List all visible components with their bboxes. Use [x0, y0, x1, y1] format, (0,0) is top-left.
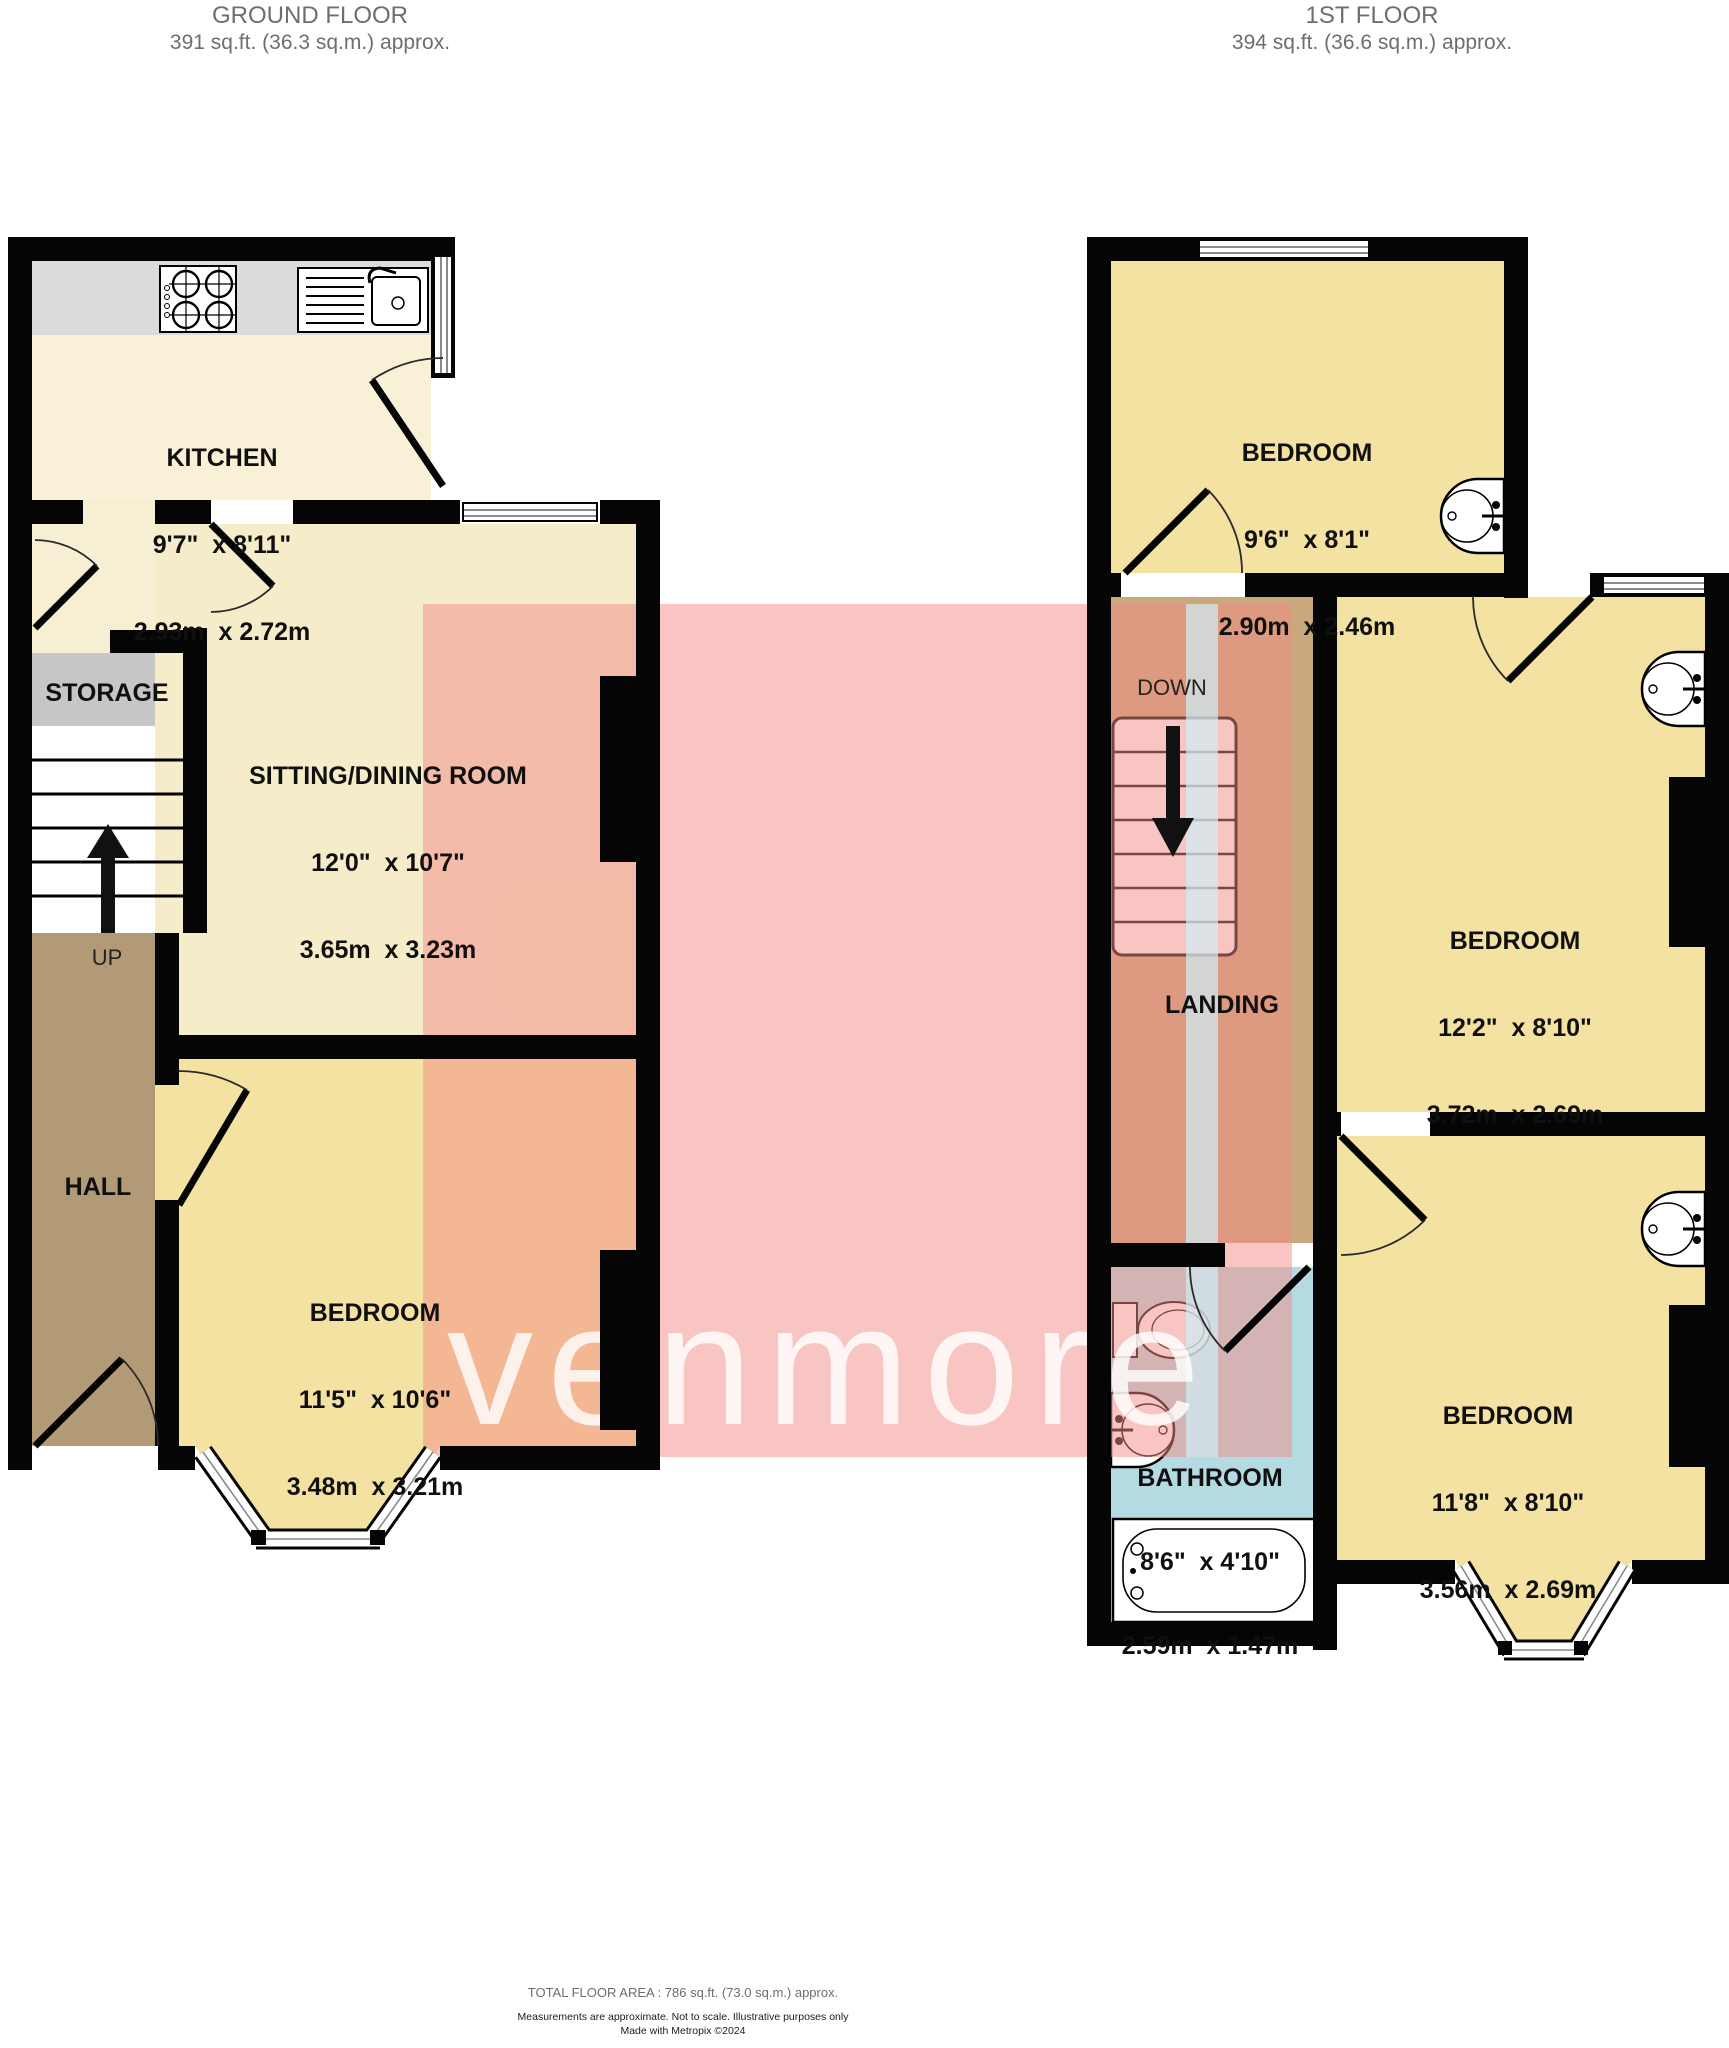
down-label: DOWN [1092, 676, 1252, 700]
bathroom-label: BATHROOM 8'6" x 4'10" 2.59m x 1.47m [1070, 1408, 1350, 1716]
wall [600, 500, 660, 524]
rear-bedroom-window [1198, 239, 1370, 259]
kitchen-counter [32, 261, 431, 335]
room-dims-metric: 2.59m x 1.47m [1070, 1632, 1350, 1660]
footer: TOTAL FLOOR AREA : 786 sq.ft. (73.0 sq.m… [333, 1984, 1033, 2038]
floorplan-page: GROUND FLOOR 391 sq.ft. (36.3 sq.m.) app… [0, 0, 1729, 2048]
wall [8, 237, 32, 1470]
chimney-breast [600, 676, 636, 862]
wall [636, 524, 660, 1470]
wall [155, 1035, 660, 1059]
room-dims-imperial: 12'0" x 10'7" [188, 849, 588, 878]
room-name: BEDROOM [1335, 927, 1695, 956]
room-dims-metric: 3.72m x 2.69m [1335, 1101, 1695, 1130]
ground-floor-header: GROUND FLOOR 391 sq.ft. (36.3 sq.m.) app… [60, 2, 560, 56]
front-bedroom-label: BEDROOM 11'8" x 8'10" 3.56m x 2.69m [1328, 1344, 1688, 1663]
first-floor-area: 394 sq.ft. (36.6 sq.m.) approx. [1122, 30, 1622, 56]
middle-bedroom-label: BEDROOM 12'2" x 8'10" 3.72m x 2.69m [1335, 869, 1695, 1188]
room-name: BEDROOM [1127, 439, 1487, 468]
middle-bedroom-window [1602, 575, 1706, 595]
room-dims-metric: 3.48m x 3.21m [195, 1473, 555, 1502]
room-name: KITCHEN [42, 444, 402, 473]
first-floor-title: 1ST FLOOR [1122, 2, 1622, 30]
metropix-credit: Made with Metropix ©2024 [333, 2024, 1033, 2038]
wall [8, 1446, 32, 1470]
hall-label: HALL [0, 1174, 196, 1201]
total-floor-area: TOTAL FLOOR AREA : 786 sq.ft. (73.0 sq.m… [333, 1984, 1033, 2001]
wall [8, 237, 455, 261]
up-label: UP [47, 946, 167, 970]
room-dims-imperial: 11'8" x 8'10" [1328, 1489, 1688, 1518]
room-name: BEDROOM [195, 1299, 555, 1328]
storage-label: STORAGE [7, 680, 207, 707]
ground-floor-area: 391 sq.ft. (36.3 sq.m.) approx. [60, 30, 560, 56]
sitting-room-label: SITTING/DINING ROOM 12'0" x 10'7" 3.65m … [188, 704, 588, 1023]
room-dims-imperial: 9'7" x 8'11" [42, 531, 402, 560]
ground-bedroom-label: BEDROOM 11'5" x 10'6" 3.48m x 3.21m [195, 1241, 555, 1560]
room-dims-metric: 2.90m x 2.46m [1127, 613, 1487, 642]
kitchen-window [433, 255, 453, 375]
room-dims-metric: 2.93m x 2.72m [42, 618, 402, 647]
room-dims-metric: 3.65m x 3.23m [188, 936, 588, 965]
wall [158, 1446, 195, 1470]
wall [1087, 573, 1121, 597]
wall [155, 1200, 179, 1446]
wall [155, 1059, 179, 1085]
first-floor-header: 1ST FLOOR 394 sq.ft. (36.6 sq.m.) approx… [1122, 2, 1622, 56]
wall [1504, 237, 1528, 598]
ground-floor-title: GROUND FLOOR [60, 2, 560, 30]
wall [1705, 573, 1729, 1584]
room-name: BATHROOM [1070, 1464, 1350, 1492]
disclaimer-note: Measurements are approximate. Not to sca… [333, 2010, 1033, 2024]
room-dims-imperial: 11'5" x 10'6" [195, 1386, 555, 1415]
room-dims-metric: 3.56m x 2.69m [1328, 1576, 1688, 1605]
room-dims-imperial: 8'6" x 4'10" [1070, 1548, 1350, 1576]
chimney-breast [600, 1250, 636, 1430]
sitting-room-window [462, 502, 598, 522]
rear-bedroom-label: BEDROOM 9'6" x 8'1" 2.90m x 2.46m [1127, 381, 1487, 700]
room-dims-imperial: 9'6" x 8'1" [1127, 526, 1487, 555]
room-name: SITTING/DINING ROOM [188, 762, 588, 791]
room-dims-imperial: 12'2" x 8'10" [1335, 1014, 1695, 1043]
landing-label: LANDING [1102, 992, 1342, 1019]
wall [1111, 1243, 1225, 1267]
kitchen-label: KITCHEN 9'7" x 8'11" 2.93m x 2.72m [42, 386, 402, 705]
room-name: BEDROOM [1328, 1402, 1688, 1431]
